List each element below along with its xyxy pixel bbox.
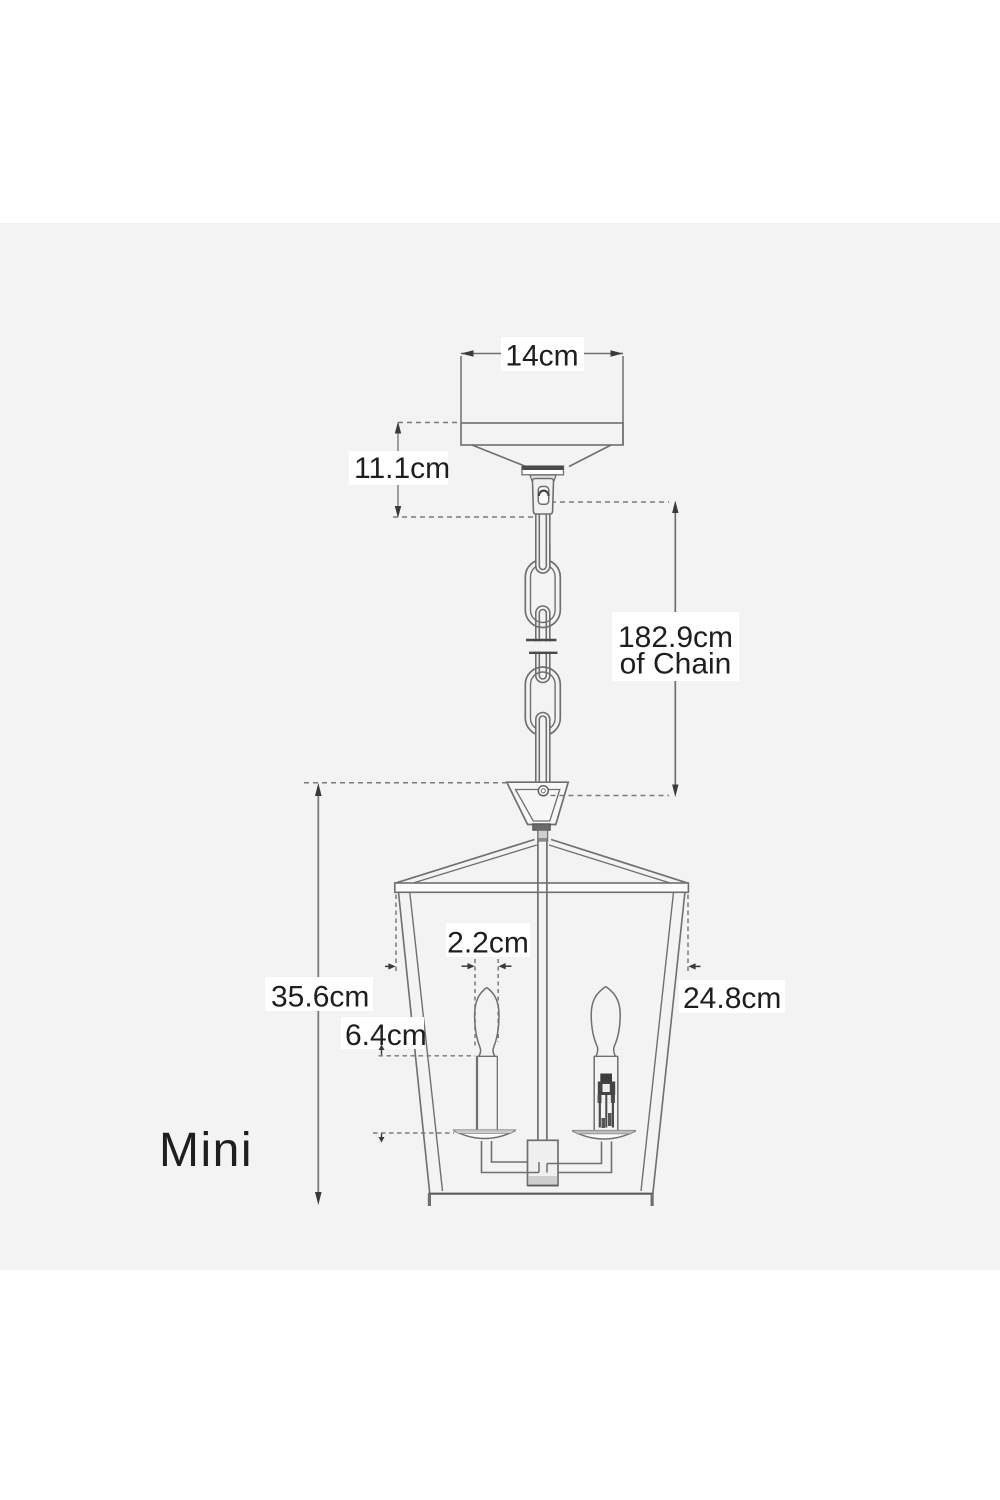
svg-text:6.4cm: 6.4cm: [345, 1019, 427, 1052]
svg-text:2.2cm: 2.2cm: [447, 927, 529, 960]
svg-text:14cm: 14cm: [505, 340, 578, 373]
svg-text:11.1cm: 11.1cm: [354, 452, 450, 485]
svg-text:Mini: Mini: [159, 1124, 253, 1177]
svg-text:24.8cm: 24.8cm: [683, 982, 781, 1015]
svg-text:35.6cm: 35.6cm: [271, 981, 369, 1014]
svg-text:of Chain: of Chain: [620, 648, 732, 681]
